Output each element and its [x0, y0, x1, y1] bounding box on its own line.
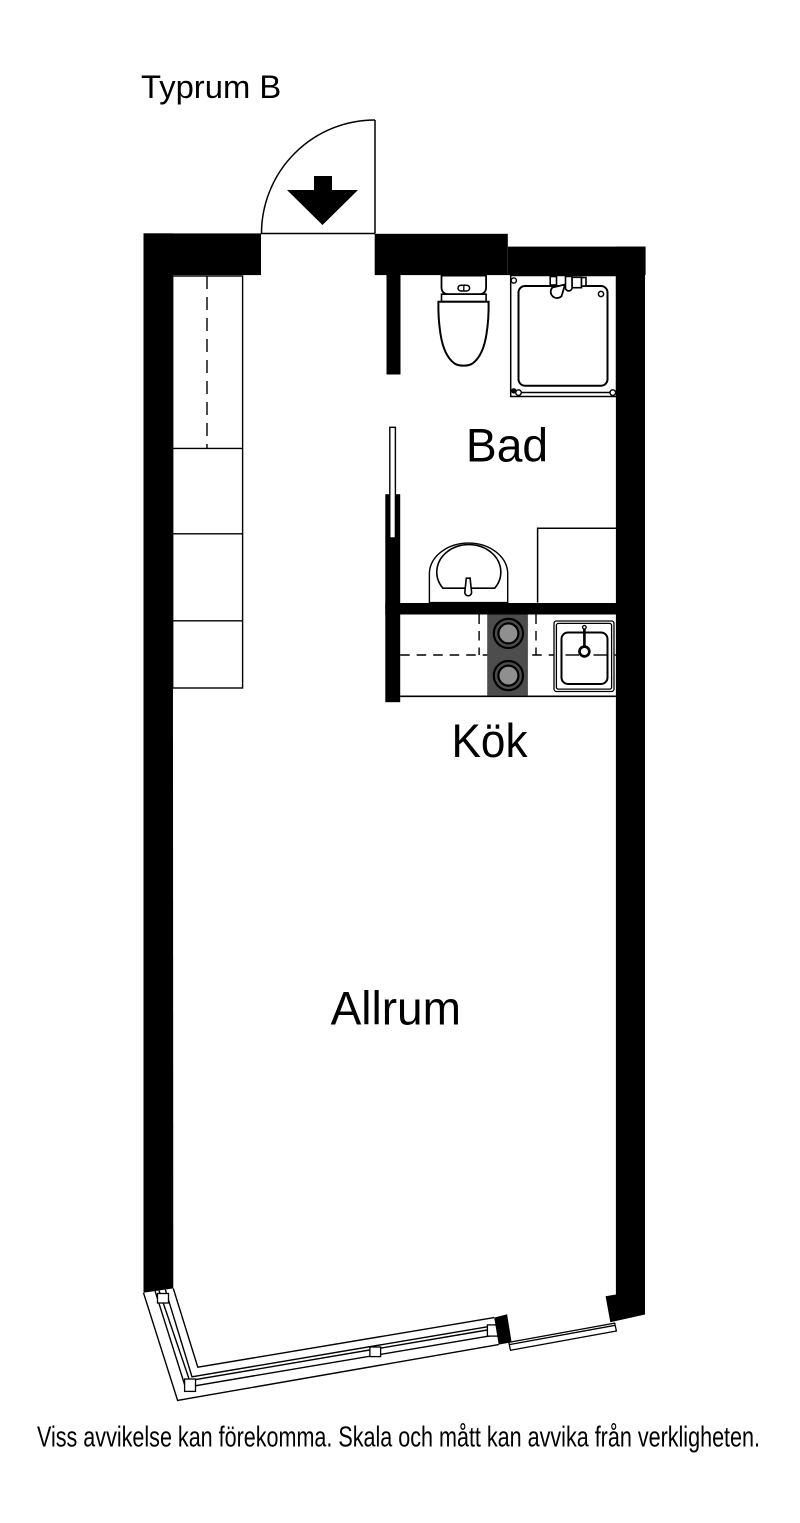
svg-text:Bad: Bad: [466, 420, 548, 473]
svg-text:Allrum: Allrum: [331, 982, 461, 1035]
svg-text:Viss avvikelse kan förekomma.: Viss avvikelse kan förekomma. Skala och …: [37, 1421, 760, 1453]
svg-text:Kök: Kök: [452, 715, 528, 768]
svg-text:Typrum B: Typrum B: [141, 68, 281, 105]
